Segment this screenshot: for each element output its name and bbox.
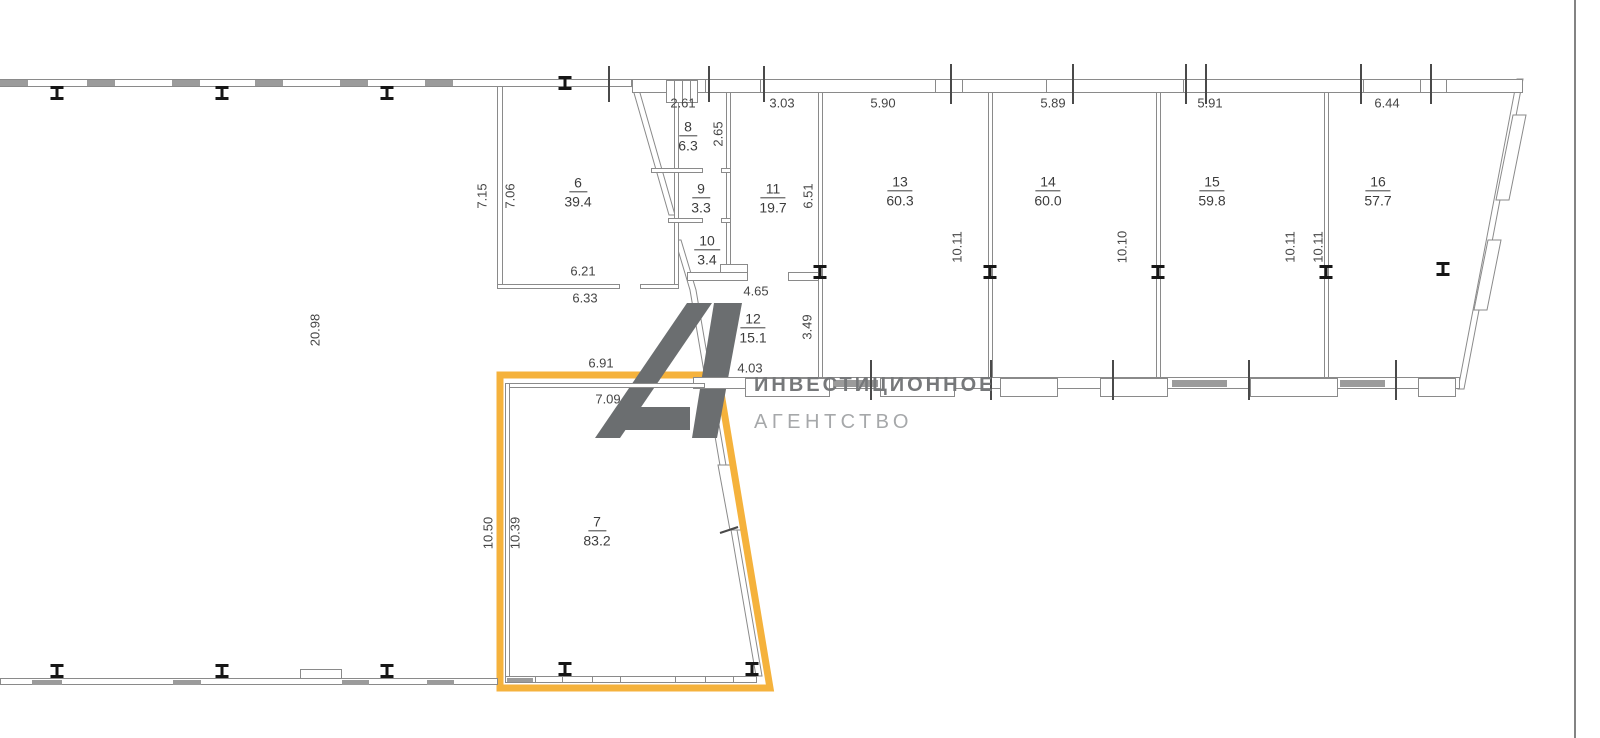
- steel-column-icon: [381, 86, 394, 100]
- steel-column-icon: [559, 76, 572, 90]
- room-number: 10: [694, 231, 720, 250]
- wall-division: [962, 79, 963, 93]
- dim-label: 10.50: [481, 517, 496, 550]
- wall-fill-segment: [340, 80, 368, 86]
- partition-13-14: [988, 92, 993, 389]
- room-number: 8: [679, 117, 697, 136]
- room-area: 83.2: [583, 533, 610, 549]
- room-11-label: 1119.7: [759, 179, 786, 216]
- room-16-label: 1657.7: [1364, 172, 1391, 209]
- window: [300, 669, 342, 679]
- dim-label: 6.33: [572, 291, 597, 306]
- steel-column-icon: [984, 265, 997, 279]
- room-area: 39.4: [564, 194, 591, 210]
- room-8-label: 86.3: [678, 117, 697, 154]
- wall-division: [562, 676, 563, 683]
- dim-label: 6.21: [570, 264, 595, 279]
- dimension-tick: [1360, 64, 1362, 104]
- room-area: 60.3: [886, 193, 913, 209]
- dim-label: 10.11: [950, 231, 965, 263]
- dimension-tick: [1395, 360, 1397, 400]
- dim-label: 7.06: [503, 183, 518, 208]
- steel-column-icon: [1437, 262, 1450, 276]
- dimension-tick: [1112, 360, 1114, 400]
- room-6-wall-bottom: [497, 284, 620, 289]
- window: [1418, 378, 1456, 397]
- wall-division: [592, 676, 593, 683]
- dim-label: 10.11: [1311, 231, 1326, 263]
- steel-column-icon: [1320, 265, 1333, 279]
- dimension-tick: [608, 66, 610, 102]
- room-number: 6: [569, 173, 587, 192]
- wall-fill-segment: [173, 680, 201, 685]
- wall-division: [1420, 79, 1421, 93]
- room-7-wall-bottom: [505, 676, 757, 683]
- room-area: 60.0: [1034, 193, 1061, 209]
- window: [1000, 378, 1058, 397]
- wall-fill-segment: [0, 80, 28, 86]
- slanted-exterior-wall-upper: [632, 86, 675, 215]
- wall-division: [1183, 79, 1184, 93]
- room-8-wall-bottom: [651, 168, 703, 173]
- steel-column-icon: [51, 86, 64, 100]
- room-area: 6.3: [678, 138, 697, 154]
- dim-label: 5.89: [1040, 96, 1065, 111]
- wall-division: [675, 676, 676, 683]
- dim-label: 2.65: [711, 121, 726, 146]
- room-number: 13: [887, 172, 913, 191]
- dimension-tick: [1248, 360, 1250, 400]
- room-area: 3.3: [691, 200, 710, 216]
- room-number: 9: [692, 179, 710, 198]
- steel-column-icon: [814, 265, 827, 279]
- steel-column-icon: [381, 664, 394, 678]
- wall-division: [1363, 79, 1364, 93]
- wall-fill-segment: [32, 680, 62, 685]
- dim-label: 5.90: [870, 96, 895, 111]
- dimension-tick: [708, 66, 710, 102]
- room-8-wall-bottom: [721, 168, 731, 173]
- wall-division: [733, 676, 734, 683]
- room-7-label: 783.2: [583, 512, 610, 549]
- steel-column-icon: [51, 664, 64, 678]
- room-12-label: 1215.1: [739, 309, 766, 346]
- room-area: 3.4: [697, 252, 716, 268]
- window-right-slant-lower: [1474, 240, 1501, 310]
- room-9-wall-bottom: [721, 218, 731, 223]
- room-number: 14: [1035, 172, 1061, 191]
- partition-14-15: [1156, 92, 1161, 389]
- wall-fill-segment: [87, 80, 115, 86]
- door-leaf: [720, 264, 748, 273]
- dim-label: 10.10: [1115, 231, 1130, 264]
- wall-division: [1446, 79, 1447, 93]
- dim-label: 2.61: [670, 96, 695, 111]
- room-6-label: 639.4: [564, 173, 591, 210]
- window: [1100, 378, 1168, 397]
- corridor-wall: [687, 272, 748, 281]
- dimension-tick: [1430, 64, 1432, 104]
- room-number: 12: [740, 309, 766, 328]
- room-10-label: 103.4: [694, 231, 720, 268]
- dim-label: 4.65: [743, 284, 768, 299]
- logo-text-line2: АГЕНТСТВО: [754, 411, 913, 434]
- steel-column-icon: [216, 664, 229, 678]
- steel-column-icon: [1152, 265, 1165, 279]
- dimension-tick: [1185, 64, 1187, 104]
- room-6-wall-bottom: [640, 284, 679, 289]
- dim-label: 3.03: [769, 96, 794, 111]
- wall-fill-segment: [255, 80, 283, 86]
- dim-label: 10.39: [508, 517, 523, 550]
- room-15-label: 1559.8: [1198, 172, 1225, 209]
- room-area: 57.7: [1364, 193, 1391, 209]
- floor-plan-vector-layer: [0, 0, 1600, 738]
- room-7-wall-top: [505, 383, 705, 388]
- wall-division: [705, 79, 706, 93]
- room-number: 16: [1365, 172, 1391, 191]
- small-rooms-wall-right: [726, 92, 731, 277]
- room-13-label: 1360.3: [886, 172, 913, 209]
- logo-text-line1: ИНВЕСТИЦИОННОЕ: [754, 374, 995, 397]
- wall-division: [760, 79, 761, 93]
- room-number: 7: [588, 512, 606, 531]
- room-number: 11: [761, 179, 786, 198]
- steel-column-icon: [216, 86, 229, 100]
- wall-fill-segment: [1340, 380, 1385, 387]
- dim-label: 5.91: [1197, 96, 1222, 111]
- dim-label: 3.49: [800, 314, 815, 339]
- wall-fill-segment: [427, 680, 454, 685]
- steel-column-icon: [746, 662, 759, 676]
- wall-fill-segment: [1172, 380, 1227, 387]
- dim-label: 20.98: [308, 314, 323, 347]
- wall-division: [935, 79, 936, 93]
- steel-column-icon: [559, 662, 572, 676]
- room-area: 19.7: [759, 200, 786, 216]
- wall-fill-segment: [172, 80, 200, 86]
- block-top-wall: [632, 79, 1523, 93]
- room-9-label: 93.3: [691, 179, 710, 216]
- dim-label: 10.11: [1283, 231, 1298, 263]
- exterior-window-wall-bottom: [0, 678, 498, 685]
- wall-division: [1046, 79, 1047, 93]
- wall-division: [620, 676, 621, 683]
- dim-label: 7.15: [475, 183, 490, 208]
- window: [1250, 378, 1338, 397]
- window-right-slant-upper: [1496, 115, 1526, 200]
- room-area: 15.1: [739, 330, 766, 346]
- wall-fill-segment: [342, 680, 369, 685]
- room-area: 59.8: [1198, 193, 1225, 209]
- dimension-tick: [763, 66, 765, 102]
- dim-label: 6.44: [1374, 96, 1399, 111]
- wall-division: [535, 676, 536, 683]
- dimension-tick: [1072, 64, 1074, 104]
- dim-label: 6.91: [588, 356, 613, 371]
- room-14-label: 1460.0: [1034, 172, 1061, 209]
- dimension-tick: [950, 64, 952, 104]
- room-9-wall-bottom: [668, 218, 703, 223]
- wall-fill-segment: [425, 80, 453, 86]
- dim-label: 7.09: [595, 392, 620, 407]
- dim-label: 6.51: [801, 183, 816, 208]
- wall-division: [705, 676, 706, 683]
- room-number: 15: [1199, 172, 1225, 191]
- partition-11-13: [818, 92, 823, 389]
- wall-fill-segment: [507, 678, 533, 682]
- floor-plan: 2.61 3.03 5.90 5.89 5.91 6.44 6.21 6.33 …: [0, 0, 1600, 738]
